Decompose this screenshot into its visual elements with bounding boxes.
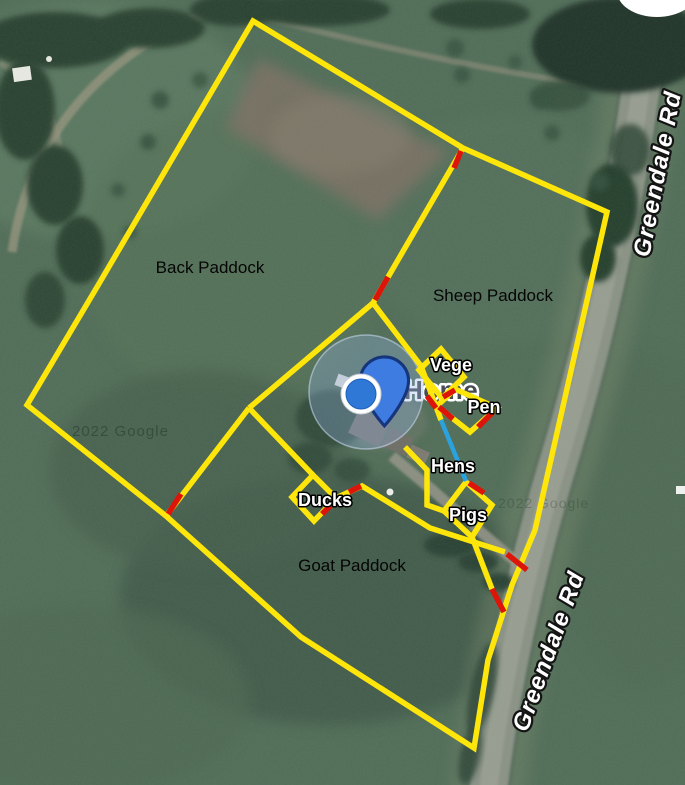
satellite-map-viewport[interactable]: 2022 Google 2022 Google Greendale Rd Gre…: [0, 0, 685, 785]
paddock-label-goat: Goat Paddock: [298, 556, 406, 575]
pen-label-pen: Pen: [467, 397, 500, 417]
location-dot: [346, 379, 376, 409]
location-marker[interactable]: [309, 335, 423, 449]
white-edge-mark: [676, 486, 685, 494]
paddock-label-back: Back Paddock: [156, 258, 265, 277]
imagery-watermark: 2022 Google: [72, 423, 169, 440]
farm-map: 2022 Google 2022 Google Greendale Rd Gre…: [0, 0, 685, 785]
pen-label-ducks: Ducks: [298, 490, 352, 510]
pen-label-pigs: Pigs: [449, 505, 487, 525]
pen-label-vege: Vege: [430, 355, 472, 375]
pen-label-hens: Hens: [431, 456, 475, 476]
paddock-label-sheep: Sheep Paddock: [433, 286, 554, 305]
